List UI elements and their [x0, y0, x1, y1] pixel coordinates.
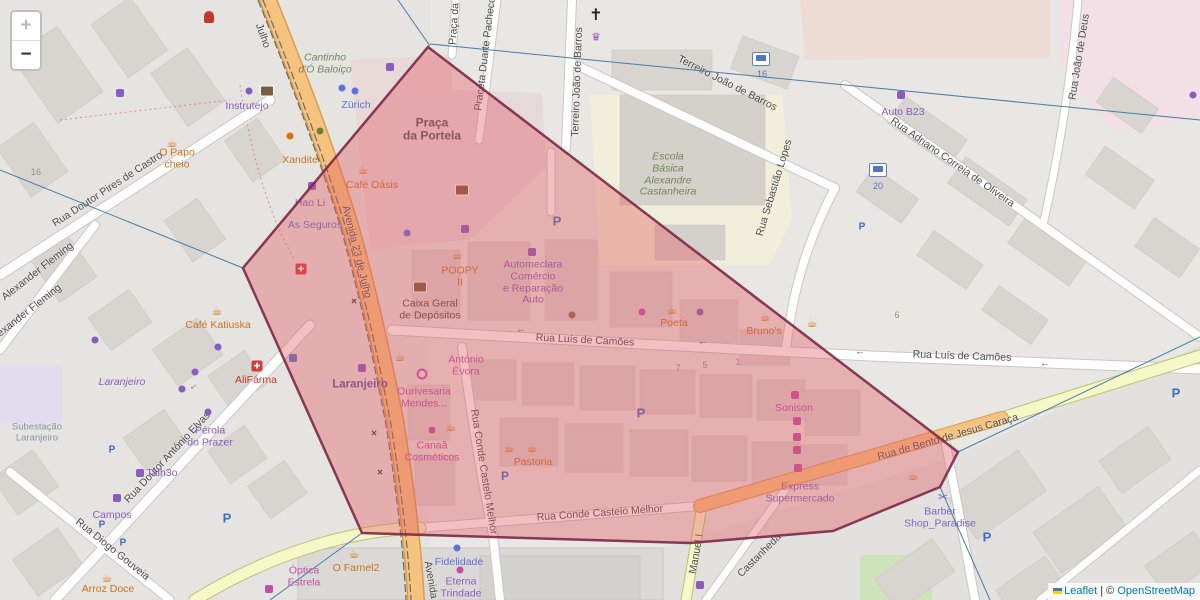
- attribution-divider: |: [1100, 585, 1103, 597]
- zoom-out-button[interactable]: −: [12, 41, 40, 69]
- leaflet-link[interactable]: Leaflet: [1064, 585, 1097, 597]
- vector-overlay: [0, 0, 1200, 600]
- copyright-symbol: ©: [1106, 585, 1114, 597]
- ukraine-flag-icon: [1053, 588, 1062, 594]
- attribution-bar: Leaflet | © OpenStreetMap: [1048, 583, 1200, 600]
- osm-link[interactable]: OpenStreetMap: [1117, 585, 1195, 597]
- zoom-control: + −: [10, 10, 42, 71]
- zoom-in-button[interactable]: +: [12, 12, 40, 41]
- selected-area-polygon[interactable]: [243, 47, 958, 543]
- leaflet-map[interactable]: Julho Avenida 23 de Julho Avenida Rua Do…: [0, 0, 1200, 600]
